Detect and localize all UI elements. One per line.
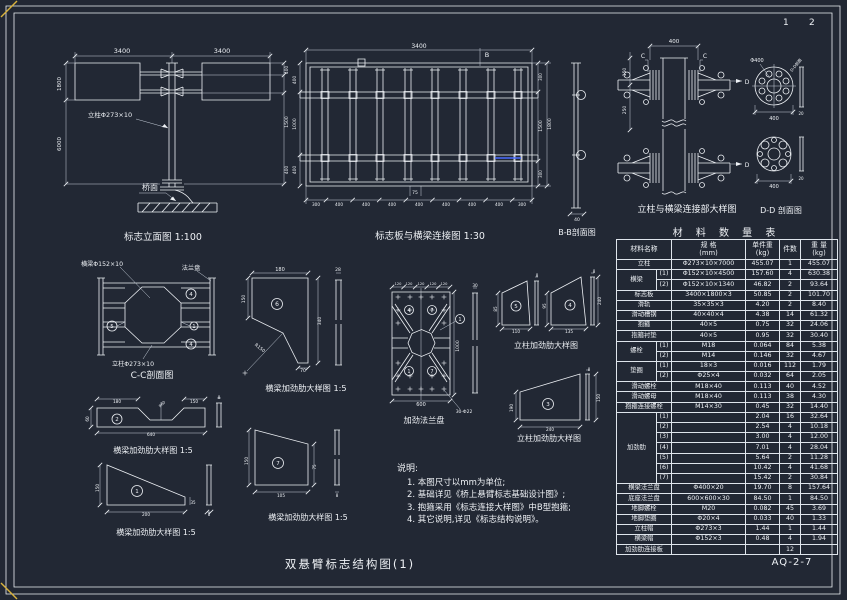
table-cell: Φ273×10×7000 [672,260,746,270]
dim-label: 400 [495,202,503,207]
table-cell: 滑动螺栓 [617,382,672,392]
table-cell: 40×5 [672,321,746,331]
table-cell: M20 [672,504,746,514]
table-cell: (1) [657,412,672,422]
table-cell: 455.07 [746,260,780,270]
dim-label: 300 [538,170,543,178]
table-row: 滑轨35×35×34.2028.40 [617,300,838,310]
dim-label: 300 [312,202,320,207]
dim-label: 法兰盘 [182,264,201,272]
table-cell: 4.52 [801,382,838,392]
dim-label: 95 [542,303,547,309]
table-cell: 84.50 [746,494,780,504]
dim-label: 5 [514,304,518,310]
table-row: 标志板3400×1800×350.852101.70 [617,290,838,300]
dim-label: 150 [241,295,247,304]
table-cell: 横梁 [617,270,657,290]
table-cell: 滑动槽钢 [617,310,672,320]
dim-label: 7 [430,308,433,314]
table-cell: 0.064 [746,341,780,351]
table-cell: 0.082 [746,504,780,514]
dim-label: 1000 [292,118,298,130]
table-header-cell: 件数 [780,240,801,260]
dim-label: 8 [593,269,596,274]
table-cell: 立柱 [617,260,672,270]
dim-label: 2 [115,417,119,423]
table-cell: 1 [780,494,801,504]
dim-label: 400 [292,166,298,175]
dim-label: 85 [493,306,498,312]
table-cell: 0.033 [746,514,780,524]
table-cell: 40×5 [672,331,746,341]
dim-label: 8 [336,493,339,498]
dim-label: 30 [472,283,478,288]
table-cell: 1.33 [801,514,838,524]
table-cell [672,433,746,443]
table-cell: 11.28 [801,453,838,463]
table-cell: 0.113 [746,392,780,402]
dim-label: D [745,79,750,86]
table-cell: 32 [780,402,801,412]
triangle-rib-view [98,463,213,514]
table-row: 立柱Φ273×10×7000455.071455.07 [617,260,838,270]
dim-label: 1 [407,369,410,375]
table-cell: 4 [780,423,801,433]
table-cell: M18 [672,341,746,351]
dim-label: 110 [512,329,520,334]
dim-label: D [745,162,750,169]
cc-section-view [97,267,216,359]
note-item: 2. 基础详见《桥上悬臂标志基础设计图》; [407,489,612,502]
view-title: 标志立面图 1:100 [124,231,202,243]
table-cell: 630.38 [801,270,838,280]
dim-label: 8 [536,273,539,278]
table-cell: M18×40 [672,392,746,402]
dim-label: 1 [135,489,139,495]
dim-label: 3400 [114,47,131,55]
view-title: 立柱与横梁连接部大样图 [637,203,736,215]
dim-label: 7 [430,369,433,375]
beam-rib6-view [243,271,342,376]
table-row: 立柱帽Φ273×31.4411.44 [617,524,838,534]
table-cell: 地脚螺栓 [617,504,672,514]
table-cell: 45 [780,504,801,514]
column-beam-detail-view [618,44,742,194]
dim-label: 250 [622,106,628,115]
table-row: 抱箍40×50.753224.06 [617,321,838,331]
table-cell: (1) [657,270,672,280]
notes-block: 说明: 1. 本图尺寸以mm为单位;2. 基础详见《桥上悬臂标志基础设计图》;3… [397,463,612,527]
table-cell: 64 [780,372,801,382]
table-cell: 112 [780,361,801,371]
table-cell: 24.06 [801,321,838,331]
table-cell: 3400×1800×3 [672,290,746,300]
dim-label: 60 [85,416,90,422]
dim-label: 300 [518,202,526,207]
board-connection-view [298,48,551,204]
dim-label: 240 [546,427,554,432]
dim-label: 30-Φ22 [456,409,473,415]
dim-label: 400 [442,202,450,207]
note-item: 3. 抱箍采用《标志连接大样图》中B型抱箍; [407,502,612,515]
dim-label: 1800 [57,77,63,91]
table-cell: Φ400×20 [672,484,746,494]
table-cell [672,412,746,422]
table-cell: 15.42 [746,473,780,483]
table-row: 横梁帽Φ152×30.4841.94 [617,535,838,545]
dim-label: 640 [147,432,155,437]
dim-label: 120 [418,282,426,286]
table-cell: Φ152×3 [672,535,746,545]
table-cell: 14 [780,310,801,320]
table-cell: Φ25×4 [672,372,746,382]
table-cell: 1 [780,524,801,534]
material-quantity-table: 材料名称规 格 (mm)单件重 (kg)件数重 量 (kg) 立柱Φ273×10… [616,239,838,555]
dim-label: 150 [596,394,601,402]
dim-label: 400 [335,202,343,207]
dim-label: 400 [468,202,476,207]
dim-label: D-D剖面 [788,57,803,73]
table-cell: 32 [780,321,801,331]
dim-label: 400 [388,202,396,207]
table-cell: 12 [780,545,801,555]
table-cell: 3.69 [801,504,838,514]
table-cell [801,545,838,555]
table-cell: Φ152×10×1340 [672,280,746,290]
drawing-title: 双悬臂标志结构图(1) [245,556,455,572]
corner-mark [1,1,17,17]
table-cell: 38 [780,392,801,402]
dim-label: 150 [244,457,249,465]
dim-label: 190 [509,404,514,412]
table-cell [672,453,746,463]
dim-label: 5 [110,324,114,330]
dim-label: B [485,51,489,59]
table-cell: 4 [780,433,801,443]
table-cell: 30.40 [801,331,838,341]
bb-section-view [568,63,586,216]
table-cell: 底座法兰盘 [617,494,672,504]
table-cell: 螺栓 [617,341,657,361]
table-cell: 84.50 [801,494,838,504]
table-row: 滑动螺母M18×400.113384.30 [617,392,838,402]
elevation-view [64,52,286,212]
table-row: 滑动槽钢40×40×44.381461.32 [617,310,838,320]
table-cell: 0.95 [746,331,780,341]
table-cell: 横梁法兰盘 [617,484,672,494]
dim-label: 8 [208,512,211,517]
table-row: 底座法兰盘600×600×3084.50184.50 [617,494,838,504]
table-cell: 滑动螺母 [617,392,672,402]
dim-label: 28 [335,267,341,273]
table-row: 横梁(1)Φ152×10×4500157.604630.38 [617,270,838,280]
dim-label: 75 [412,190,418,196]
table-header-cell: 单件重 (kg) [746,240,780,260]
page-number-left: 1 [783,18,789,28]
table-header-cell: 规 格 (mm) [672,240,746,260]
sheet-number: AQ-2-7 [752,557,832,568]
table-row: 螺栓(1)M180.064845.38 [617,341,838,351]
table-cell: 12.00 [801,433,838,443]
table-cell: 1.79 [801,361,838,371]
table-cell [672,473,746,483]
table-cell: 横梁帽 [617,535,672,545]
table-cell: 标志板 [617,290,672,300]
table-cell: 40×40×4 [672,310,746,320]
dim-label: 立柱Φ273×10 [88,110,132,119]
view-title: 横梁加劲肋大样图 1:5 [116,527,195,537]
table-cell [672,545,746,555]
dim-label: 200 [142,512,150,517]
dim-label: 180 [275,267,285,273]
dim-label: C [703,53,707,60]
dim-label: 75 [312,464,317,470]
table-cell: 32 [780,351,801,361]
table-cell: 18×3 [672,361,746,371]
table-cell: 40 [780,514,801,524]
table-cell [672,423,746,433]
view-title: C-C剖面图 [131,369,174,381]
table-cell: 2 [780,473,801,483]
table-cell: 10.18 [801,423,838,433]
table-cell: 7.01 [746,443,780,453]
dim-label: 6000 [57,137,63,151]
table-row: 加劲肋(1)2.041632.64 [617,412,838,422]
dim-label: 600 [416,402,426,408]
notch-rib-view [89,397,222,435]
table-cell: 2 [780,290,801,300]
column-ribs-view [496,273,600,331]
table-cell: 垫圈 [617,361,657,381]
table-row: 抱箍连接螺栓M14×300.453214.40 [617,402,838,412]
table-header-cell: 材料名称 [617,240,672,260]
table-cell: 立柱帽 [617,524,672,534]
table-cell: 抱箍衬垫 [617,331,672,341]
material-table-title: 材 料 数 量 表 [616,224,837,239]
table-cell: 5.38 [801,341,838,351]
table-cell: 2.05 [801,372,838,382]
dim-label: 1500 [284,116,290,128]
dim-label: 400 [362,202,370,207]
table-cell: 2 [780,453,801,463]
table-cell: 0.032 [746,372,780,382]
table-cell: 1 [780,260,801,270]
table-row: 横梁法兰盘Φ400×2019.708157.64 [617,484,838,494]
table-cell: (1) [657,361,672,371]
table-cell: (2) [657,351,672,361]
table-cell: 8.40 [801,300,838,310]
table-cell: Φ152×10×4500 [672,270,746,280]
note-item: 1. 本图尺寸以mm为单位; [407,477,612,490]
table-cell: 30.84 [801,473,838,483]
dim-label: 8 [218,395,221,400]
dim-label: 桥面 [142,182,158,192]
table-cell: 2.04 [746,412,780,422]
table-cell: 50.85 [746,290,780,300]
dim-label: 300 [538,73,543,81]
table-cell: 0.75 [746,321,780,331]
table-cell: 抱箍 [617,321,672,331]
table-cell: 4 [780,535,801,545]
dim-label: 20 [798,111,804,116]
flange-plate-view [390,285,478,409]
notes-title: 说明: [397,463,612,476]
dim-label: 1500 [538,120,544,132]
dim-label: 150 [190,399,198,404]
dim-label: 240 [597,297,602,305]
table-cell: 157.60 [746,270,780,280]
dim-label: 4 [568,303,572,309]
table-cell: 14.40 [801,402,838,412]
table-cell: (3) [657,433,672,443]
dim-label: C [641,53,645,60]
dim-label: 1800 [547,118,553,130]
table-header-cell: 重 量 (kg) [801,240,838,260]
dim-label: 150 [95,484,100,492]
view-title: 横梁加劲肋大样图 1:5 [265,383,346,393]
table-cell: 0.45 [746,402,780,412]
table-cell: 41.68 [801,463,838,473]
dim-label: 1 [458,317,461,323]
table-cell: 40 [780,382,801,392]
table-row: 垫圈(1)18×30.0161121.79 [617,361,838,371]
table-cell: 1.44 [746,524,780,534]
dim-label: 120 [441,282,449,286]
table-cell: Φ20×4 [672,514,746,524]
table-cell: (6) [657,463,672,473]
dim-label: 40 [574,217,580,223]
table-cell: 19.70 [746,484,780,494]
table-cell: 加劲肋 [617,412,657,483]
column-rib3-view [514,370,598,429]
table-cell: 2 [780,300,801,310]
table-cell: M14 [672,351,746,361]
table-cell: (2) [657,423,672,433]
dim-label: 135 [565,329,573,334]
cad-drawing-sheet: 标志立面图 1:10034003400180060004001500400立柱Φ… [0,0,847,600]
table-cell: (5) [657,453,672,463]
dim-label: 400 [415,202,423,207]
table-row: 抱箍衬垫40×50.953230.40 [617,331,838,341]
table-cell: 10.42 [746,463,780,473]
dim-label: 105 [277,493,285,498]
table-cell: 8 [780,484,801,494]
page-number-right: 2 [809,18,815,28]
dim-label: 立柱Φ273×10 [112,360,154,368]
table-cell: Φ273×3 [672,524,746,534]
table-cell: 4.30 [801,392,838,402]
dim-label: 7 [276,461,280,467]
table-cell: (2) [657,372,672,382]
table-cell: 46.82 [746,280,780,290]
table-cell: 4.67 [801,351,838,361]
dim-label: 400 [769,184,779,190]
table-cell: 5.64 [746,453,780,463]
table-cell: 4 [780,443,801,453]
table-cell [746,545,780,555]
dim-label: 1 [192,324,195,330]
table-row: 滑动螺栓M18×400.113404.52 [617,382,838,392]
dim-label: 70 [300,368,306,374]
table-cell: 157.64 [801,484,838,494]
table-cell: 600×600×30 [672,494,746,504]
dim-label: 340 [317,317,323,326]
dim-label: 4 [407,308,410,314]
dim-label: 横梁Φ152×10 [81,260,123,268]
dim-label: 120 [430,282,438,286]
dim-label: 3400 [411,43,426,50]
view-title: 加劲法兰盘 [404,415,445,425]
table-cell: 4.20 [746,300,780,310]
table-cell: 4 [780,270,801,280]
view-title: D-D 剖面图 [760,205,802,215]
dim-label: 120 [406,282,414,286]
dim-label: 400 [292,76,298,85]
table-cell: 2 [780,280,801,290]
table-cell [672,463,746,473]
view-title: 立柱加劲肋大样图 [514,340,578,350]
view-title: 标志板与横梁连接图 1:30 [375,230,485,242]
dim-label: 3400 [214,47,231,55]
table-cell: 4.38 [746,310,780,320]
dim-label: 150 [622,68,628,77]
table-cell: 35×35×3 [672,300,746,310]
dim-label: 3 [546,402,550,408]
dim-label: 400 [284,166,290,175]
table-cell: 0.48 [746,535,780,545]
table-cell: (1) [657,341,672,351]
table-cell: 1.94 [801,535,838,545]
table-header: 材料名称规 格 (mm)单件重 (kg)件数重 量 (kg) [617,240,838,260]
table-cell: M18×40 [672,382,746,392]
view-title: 立柱加劲肋大样图 [517,433,581,443]
dim-label: 400 [284,66,290,75]
table-row: 地脚垫圈Φ20×40.033401.33 [617,514,838,524]
table-cell: 61.32 [801,310,838,320]
dim-label: Φ400 [750,58,763,64]
table-cell [672,443,746,453]
table-cell: 32.64 [801,412,838,422]
view-title: B-B剖面图 [558,227,596,237]
table-cell: 滑轨 [617,300,672,310]
table-cell: 0.146 [746,351,780,361]
table-cell: 101.70 [801,290,838,300]
table-cell: 加劲肋连接板 [617,545,672,555]
table-cell: 1.44 [801,524,838,534]
table-cell: 28.04 [801,443,838,453]
table-cell: 32 [780,331,801,341]
table-cell: (7) [657,473,672,483]
dim-label: 1000 [455,340,461,352]
table-cell: 2.54 [746,423,780,433]
table-cell: 0.113 [746,382,780,392]
dim-label: 4 [189,342,193,348]
dim-label: 35 [190,500,196,505]
dim-label: 120 [395,282,403,286]
dim-label: 6 [275,301,279,308]
dim-label: 4 [189,292,193,298]
table-cell: 地脚垫圈 [617,514,672,524]
dim-label: 400 [769,116,779,122]
view-title: 横梁加劲肋大样图 1:5 [268,512,347,522]
dim-label: R60 [158,399,167,408]
dim-label: 180 [113,399,121,404]
table-cell: 0.016 [746,361,780,371]
table-cell: 抱箍连接螺栓 [617,402,672,412]
dd-section-view [752,64,804,184]
table-cell: 4 [780,463,801,473]
trapezoid-rib-view [247,428,340,494]
